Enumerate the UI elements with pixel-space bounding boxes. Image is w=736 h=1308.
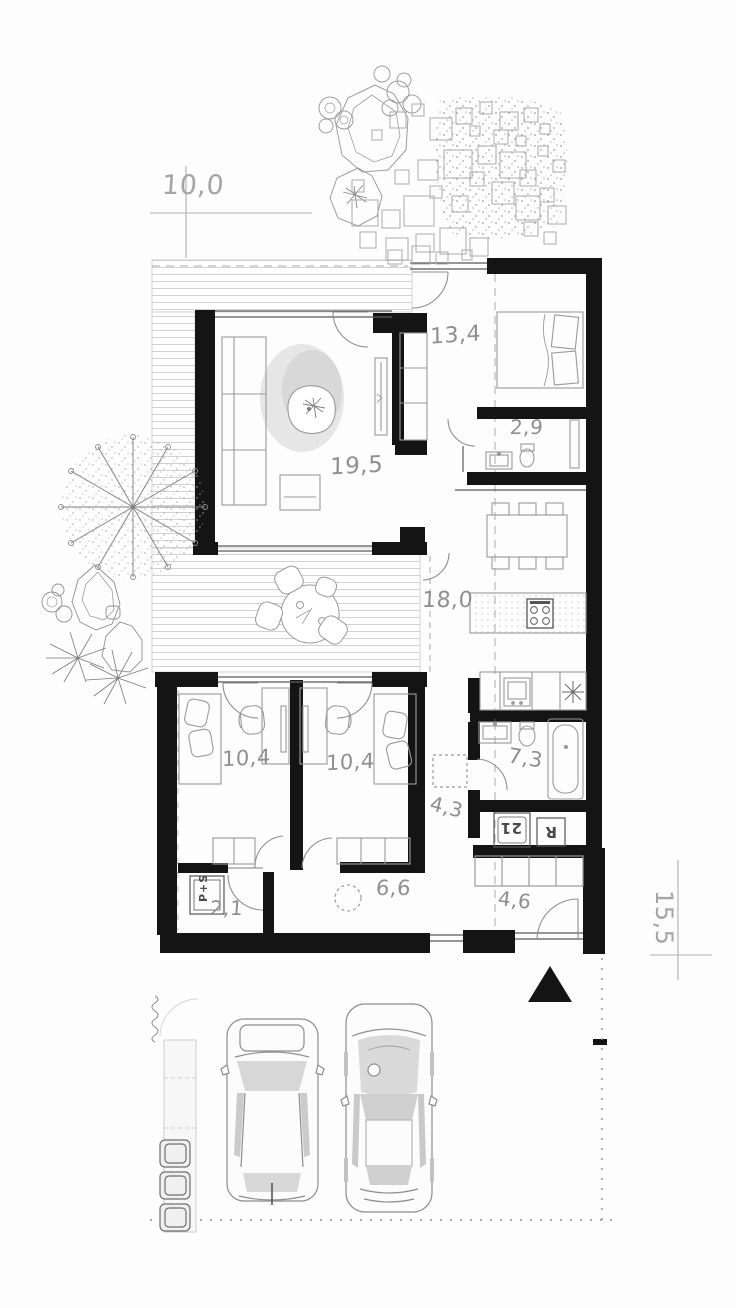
room-label-bathroom: 7,3	[507, 745, 545, 771]
dining-table	[487, 515, 567, 557]
kid-bed-left	[179, 694, 221, 784]
desk-right	[300, 688, 327, 764]
stove-symbol	[562, 681, 584, 703]
room-label-kids-left: 10,4	[222, 747, 271, 771]
coffee-table	[288, 386, 335, 434]
bedroom-closet	[400, 333, 427, 440]
room-label-corridor: 6,6	[375, 878, 411, 899]
appliance-label-pantry: P+S	[198, 874, 209, 902]
kitchen-counter	[480, 672, 586, 710]
dim-label-right: 15,5	[652, 890, 676, 945]
bedroom-furniture	[400, 312, 583, 440]
grass-tuft-1	[46, 632, 106, 682]
wc-toilet	[520, 449, 534, 467]
dim-label-top: 10,0	[161, 172, 225, 199]
room-label-kitchen-dining: 18,0	[421, 590, 474, 612]
hall-dashed-box	[433, 755, 467, 787]
car-left	[221, 1019, 324, 1205]
parking-area	[152, 996, 437, 1232]
gate-coil	[152, 996, 158, 1042]
chair-right	[325, 705, 351, 735]
grass-tuft-2	[86, 650, 148, 704]
floor-plan-drawing	[0, 0, 736, 1308]
appliance-label-dryer: R	[544, 824, 558, 839]
wardrobe-right	[337, 838, 410, 864]
room-label-living: 19,5	[330, 454, 384, 480]
sofa	[222, 337, 266, 505]
room-label-wc: 2,9	[509, 417, 544, 437]
bins	[160, 1140, 190, 1231]
hall-light-dashed	[335, 885, 361, 911]
side-strip	[164, 1040, 196, 1232]
car-right	[341, 1004, 437, 1212]
room-label-entry: 4,6	[497, 888, 533, 912]
kitchen-dining-furniture	[470, 503, 586, 710]
entrance-arrow	[528, 966, 572, 1002]
room-label-kids-right: 10,4	[326, 751, 375, 775]
floor-plan-canvas: 10,0 15,5 13,4 2,9 19,5 18,0 10,4 10,4 7…	[0, 0, 736, 1308]
wc-cabinet	[570, 420, 579, 468]
room-label-utility-small: 2,1	[209, 898, 244, 918]
pavers-scatter	[352, 96, 567, 264]
appliance-label-washer: 21	[502, 820, 522, 835]
living-room-furniture	[222, 337, 387, 510]
tv-bench	[280, 475, 320, 510]
double-bed	[497, 312, 583, 388]
room-label-bedroom: 13,4	[430, 323, 481, 349]
